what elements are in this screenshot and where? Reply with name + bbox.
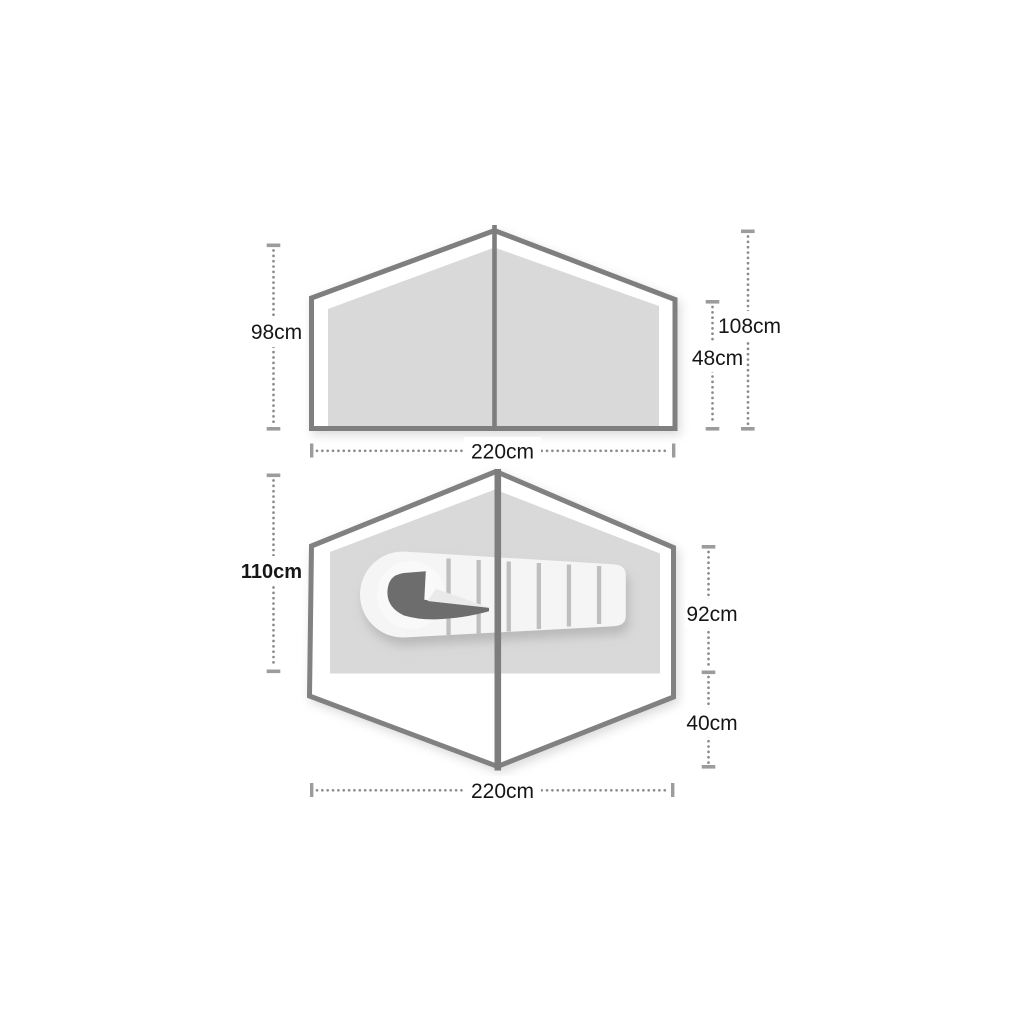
svg-text:40cm: 40cm xyxy=(686,712,737,735)
svg-text:98cm: 98cm xyxy=(251,321,302,344)
svg-text:48cm: 48cm xyxy=(692,347,743,370)
svg-text:220cm: 220cm xyxy=(471,441,534,464)
svg-text:110cm: 110cm xyxy=(241,561,302,583)
svg-text:220cm: 220cm xyxy=(471,780,534,803)
svg-text:108cm: 108cm xyxy=(718,315,781,338)
svg-text:92cm: 92cm xyxy=(686,603,737,626)
